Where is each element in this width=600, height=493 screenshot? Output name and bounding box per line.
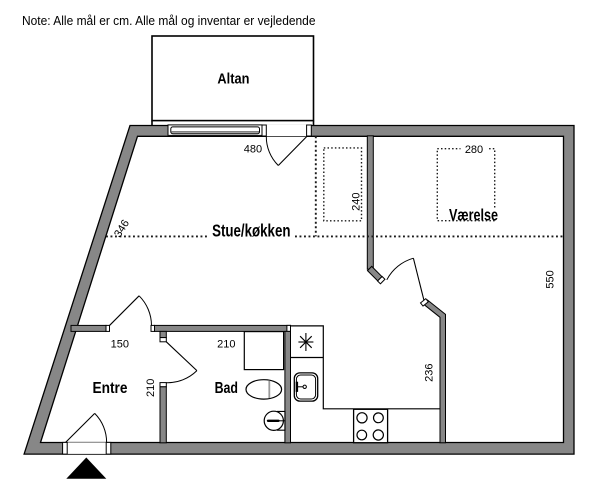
svg-text:Altan: Altan	[217, 71, 249, 88]
svg-text:Bad: Bad	[215, 380, 238, 397]
svg-text:550: 550	[545, 270, 557, 288]
svg-text:480: 480	[244, 143, 262, 155]
svg-text:Entre: Entre	[93, 380, 128, 397]
svg-text:280: 280	[465, 144, 483, 156]
svg-text:210: 210	[217, 339, 235, 351]
svg-text:Værelse: Værelse	[449, 205, 498, 224]
svg-text:240: 240	[350, 193, 362, 211]
svg-text:150: 150	[111, 339, 129, 351]
svg-text:236: 236	[423, 364, 435, 382]
svg-text:Stue/køkken: Stue/køkken	[212, 220, 290, 240]
svg-text:Note: Alle mål er cm. Alle mål: Note: Alle mål er cm. Alle mål og invent…	[22, 13, 316, 28]
svg-text:210: 210	[145, 379, 157, 397]
